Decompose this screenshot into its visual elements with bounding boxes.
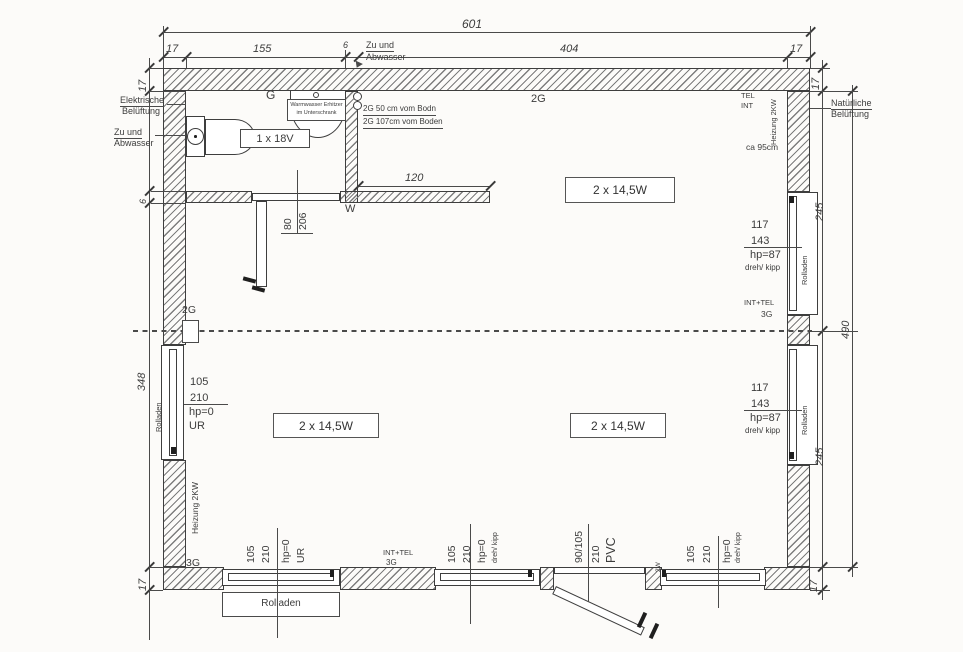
dim-right-seg-top-label: 245 (814, 190, 826, 234)
g3-right-label: 3G (761, 310, 772, 320)
win-rt-width: 117 (751, 219, 769, 231)
win-b2-type: dreh/ kipp (492, 515, 500, 563)
window-left-hinge-mark (171, 447, 176, 454)
dim-wall-right-label: 17 (790, 43, 802, 55)
win-b2-hp: hp=0 (477, 527, 489, 563)
wall-bottom-a (163, 567, 224, 590)
win-b1-type: UR (296, 543, 308, 563)
room-label-bottom-right: 2 x 14,5W (570, 413, 666, 438)
sink-faucet-dot (313, 92, 319, 98)
abwasser-left-label: Abwasser (114, 138, 154, 148)
wall-niche (182, 320, 199, 343)
win-left-width: 105 (190, 376, 208, 388)
boiler-label-line1: Warmwasser Erhitzer (287, 102, 346, 108)
ext-line (149, 91, 186, 92)
win-rt-height: 143 (751, 235, 769, 247)
dim-right-wall-bottom-label: 17 (808, 568, 820, 592)
w2-label: 2W (655, 556, 662, 572)
bath-wall-horizontal-a (186, 191, 252, 203)
room-label-bottom-right-text: 2 x 14,5W (591, 419, 645, 433)
wall-right-lower (787, 465, 810, 567)
dim-wall-left-label: 17 (166, 43, 178, 55)
win-b1-leader (277, 528, 278, 638)
ext-line (186, 57, 187, 68)
wall-left-lower (163, 460, 186, 567)
room-label-bottom-left-text: 2 x 14,5W (299, 419, 353, 433)
window-b1-glass (228, 573, 334, 581)
ca95-label: ca 95cm (746, 143, 778, 153)
window-right-top-glass (789, 196, 797, 311)
win-b3-hp: hp=0 (722, 527, 734, 563)
abwasser-top-label: Abwasser (366, 52, 406, 62)
window-b1-hinge-mark (330, 570, 334, 577)
dim-right-total-label: 490 (840, 308, 852, 352)
win-b3-type: dreh/ kipp (735, 515, 743, 563)
dim-bath-width-label: 155 (253, 43, 271, 55)
nook-dim-line (358, 186, 490, 187)
belueftung-right-label: Belüftung (831, 109, 869, 119)
ext-line (163, 26, 164, 68)
door-jamb-left (540, 567, 554, 590)
pipe-circle-1 (353, 92, 362, 101)
win-rb-hp: hp=87 (750, 412, 781, 424)
leader-line (155, 135, 186, 136)
win-rb-height: 143 (751, 398, 769, 410)
win-b2-width: 105 (447, 527, 459, 563)
pipe-circle-2 (353, 101, 362, 110)
ext-line (149, 567, 186, 568)
ext-line (810, 26, 811, 68)
win-b3-height: 210 (702, 527, 714, 563)
zu-und-top-label: Zu und (366, 40, 394, 52)
heizung-right-label: Heizung 2KW (770, 93, 778, 145)
floor-plan-drawing: Rolladen Rolladen Rolladen Rolladen 80 2… (0, 0, 963, 652)
wall-bottom-e (764, 567, 810, 590)
door-material-label: PVC (604, 521, 618, 563)
door-width-label: 90/105 (574, 517, 586, 563)
door-sill (554, 567, 645, 574)
win-b1-hp: hp=0 (281, 527, 293, 563)
g3-left-label: 3G (186, 558, 200, 570)
dim-left-partition-label: 6 (138, 190, 148, 204)
win-b3-width: 105 (686, 527, 698, 563)
nook-dim-label: 120 (405, 172, 423, 184)
bath-door-leaf (256, 201, 267, 287)
pipe-lower-label: 2G 107cm vom Boden (363, 118, 443, 129)
door-leaf (552, 586, 645, 636)
window-b2-glass (440, 573, 534, 581)
pipe-upper-label: 2G 50 cm vom Bodn (363, 105, 436, 116)
section-dashed-line (133, 330, 812, 332)
bath-g-label: G (266, 89, 275, 102)
g3-bottom-label: 3G (386, 559, 397, 568)
room-label-top-text: 2 x 14,5W (593, 183, 647, 197)
window-right-bottom-hinge-mark (789, 452, 794, 459)
ext-line (151, 191, 186, 192)
wall-top (163, 68, 810, 91)
leader-line (167, 104, 186, 105)
bath-door-height-label: 206 (298, 196, 310, 230)
ext-line (151, 203, 186, 204)
window-b1-rolladen-label: Rolladen (222, 598, 340, 609)
window-left-rolladen-label: Rolladen (155, 372, 163, 432)
bath-door-width-label: 80 (283, 204, 295, 230)
win-b1-height: 210 (261, 527, 273, 563)
win-rt-hp: hp=87 (750, 249, 781, 261)
room-label-bottom-left: 2 x 14,5W (273, 413, 379, 438)
int-label: INT (741, 102, 753, 110)
win-left-line (184, 404, 228, 405)
g2-top-label: 2G (531, 93, 546, 105)
window-right-bottom-rolladen-label: Rolladen (801, 375, 809, 435)
heizung-left-label: Heizung 2KW (191, 462, 201, 534)
win-b1-width: 105 (246, 527, 258, 563)
window-b3-glass (666, 573, 760, 581)
room-label-top: 2 x 14,5W (565, 177, 675, 203)
int-tel-bottom-label: INT+TEL (383, 549, 413, 557)
belueftung-left-label: Belüftung (122, 106, 160, 116)
ext-line (149, 68, 163, 69)
dim-total-label: 601 (462, 18, 482, 31)
ext-line (787, 57, 788, 68)
g2-left-label: 2G (182, 305, 196, 317)
mirror-18v-label: 1 x 18V (240, 133, 310, 145)
win-left-type: UR (189, 420, 205, 432)
window-right-top-rolladen-label: Rolladen (801, 225, 809, 285)
int-tel-right-label: INT+TEL (744, 299, 774, 307)
win-b3-leader (718, 536, 719, 608)
window-right-bottom-glass (789, 349, 797, 461)
window-left-glass (169, 349, 177, 456)
bath-door-dim-base (281, 233, 313, 234)
dim-left-wall-bottom-label: 17 (137, 567, 149, 591)
dim-total-line (163, 32, 810, 33)
window-right-top-hinge-mark (789, 196, 794, 203)
door-handle-mark-2 (649, 623, 659, 639)
window-b3-hinge-mark (662, 570, 666, 577)
win-left-hp: hp=0 (189, 406, 214, 418)
tel-label: TEL (741, 92, 755, 100)
bath-door-sill (252, 193, 340, 201)
wall-bottom-b (340, 567, 436, 590)
win-rt-line (744, 247, 802, 248)
bath-door-handle-mark-1 (243, 276, 256, 283)
door-leader (588, 524, 589, 602)
ext-line (149, 590, 163, 591)
leader-line (810, 108, 831, 109)
win-b2-height: 210 (462, 527, 474, 563)
ext-line (810, 91, 858, 92)
dim-top-row-line (163, 57, 810, 58)
dim-left-height-label: 348 (136, 360, 148, 404)
dim-left-wall-top-label: 17 (137, 68, 149, 92)
window-b2-hinge-mark (528, 570, 532, 577)
wall-right-upper (787, 91, 810, 192)
dim-main-width-label: 404 (560, 43, 578, 55)
ext-line (345, 50, 346, 68)
toilet-flush-dot (194, 135, 197, 138)
win-rb-type: dreh/ kipp (745, 427, 780, 436)
bath-wall-horizontal-b (340, 191, 490, 203)
dim-right-seg-bottom-label: 245 (814, 435, 826, 479)
win-left-height: 210 (190, 392, 208, 404)
win-rb-line (744, 410, 802, 411)
dim-partition-label: 6 (343, 40, 348, 50)
win-rt-type: dreh/ kipp (745, 264, 780, 273)
w-mark-label: W (345, 203, 355, 215)
win-rb-width: 117 (751, 382, 769, 394)
dim-right-wall-top-label: 17 (810, 66, 822, 90)
door-height-label: 210 (591, 527, 603, 563)
boiler-label-line2: im Unterschrank (287, 110, 346, 116)
